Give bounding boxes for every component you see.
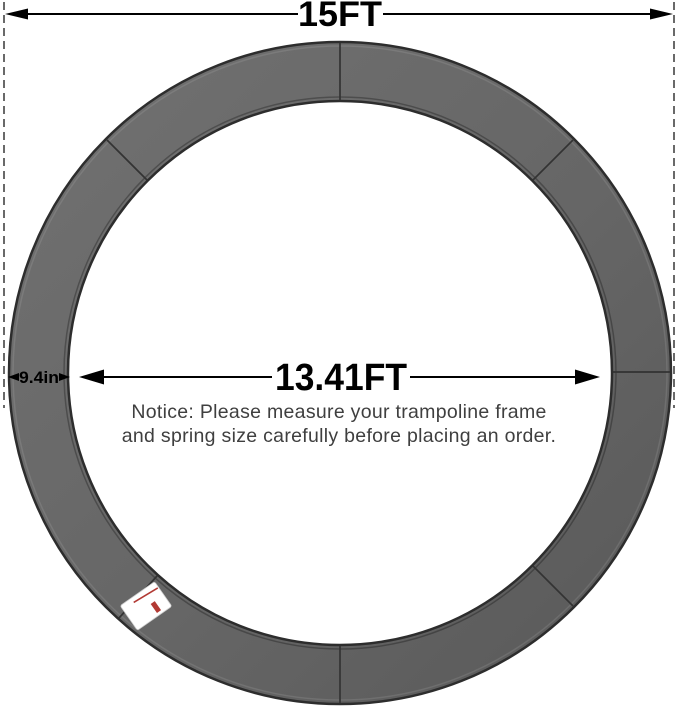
inner-dim-arrow-right-icon [575, 370, 600, 385]
inner-dimension: 13.41FT [79, 357, 600, 399]
pad-width-label: 9.4in [19, 368, 59, 387]
notice-line-1: Notice: Please measure your trampoline f… [131, 401, 546, 423]
outer-dimension-label: 15FT [298, 0, 382, 34]
trampoline-pad-dimension-diagram: 15FT 13.41FT 9.4in Notice: Please measur… [0, 0, 679, 713]
outer-dim-arrow-left-icon [5, 9, 28, 20]
outer-dim-arrow-right-icon [650, 9, 673, 20]
inner-dim-arrow-left-icon [79, 370, 104, 385]
diagram-canvas: 15FT 13.41FT 9.4in Notice: Please measur… [0, 0, 679, 713]
outer-dimension: 15FT [5, 0, 673, 34]
notice-line-2: and spring size carefully before placing… [122, 425, 557, 447]
inner-dimension-label: 13.41FT [275, 357, 407, 399]
notice: Notice: Please measure your trampoline f… [122, 401, 557, 447]
